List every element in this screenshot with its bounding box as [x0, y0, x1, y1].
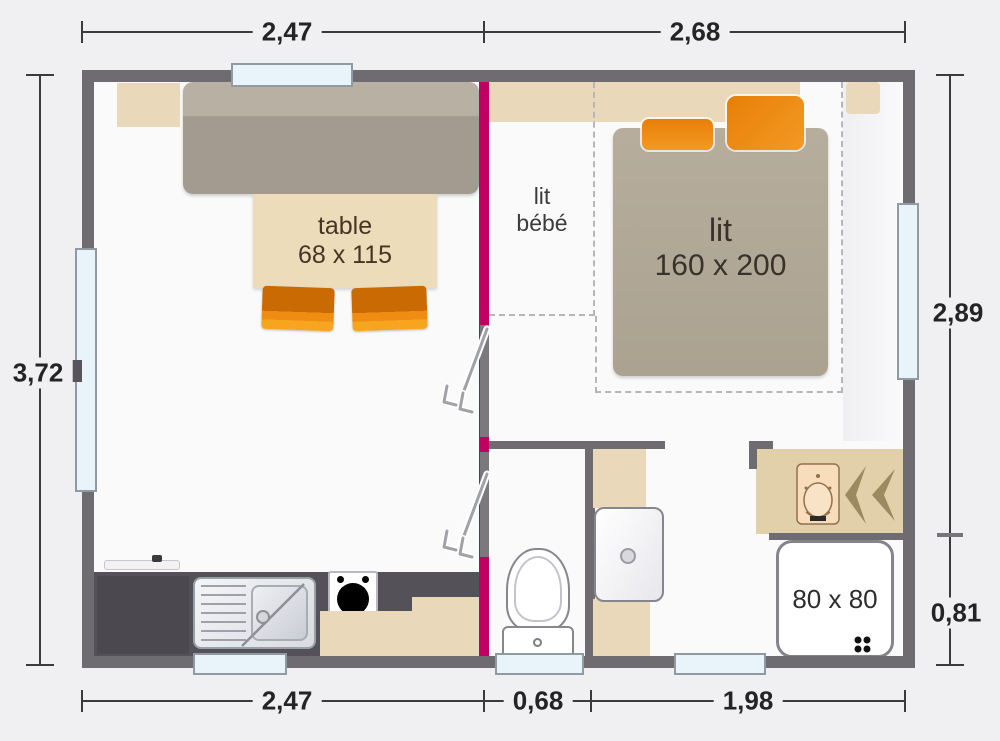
door-swing-arrow-icon: [444, 474, 487, 557]
dim-label-bottom-middle: 0,68: [504, 686, 573, 717]
line-art-overlay: [0, 0, 1000, 741]
vanity-basin-icon: [797, 464, 839, 524]
dim-tick: [483, 21, 485, 43]
dim-label-bottom-right: 1,98: [714, 686, 783, 717]
dim-tick: [81, 21, 83, 43]
dim-tick: [936, 664, 964, 666]
dim-label-top-left: 2,47: [253, 17, 322, 48]
dim-tick: [590, 690, 592, 712]
floor-plan: table 68 x 115 lit 160 x 200 lit bébé: [0, 0, 1000, 741]
shower-drain-icon: [855, 637, 871, 653]
dim-tick: [937, 533, 963, 537]
dim-tick: [26, 74, 54, 76]
dim-label-bottom-left: 2,47: [253, 686, 322, 717]
sink-faucet-icon: [242, 584, 304, 646]
dim-line-top: [82, 31, 905, 33]
dim-line-right: [949, 75, 951, 665]
dim-tick: [483, 690, 485, 712]
dim-label-left: 3,72: [4, 358, 73, 389]
dim-tick: [904, 21, 906, 43]
dim-label-top-right: 2,68: [661, 17, 730, 48]
dim-label-right-bottom: 0,81: [922, 598, 991, 629]
dim-label-right-top: 2,89: [924, 298, 993, 329]
double-chevron-icon: [845, 466, 895, 524]
door-swing-arrow-icon: [444, 329, 487, 412]
dim-tick: [26, 664, 54, 666]
dim-tick: [904, 690, 906, 712]
dim-tick: [81, 690, 83, 712]
dim-tick: [936, 74, 964, 76]
